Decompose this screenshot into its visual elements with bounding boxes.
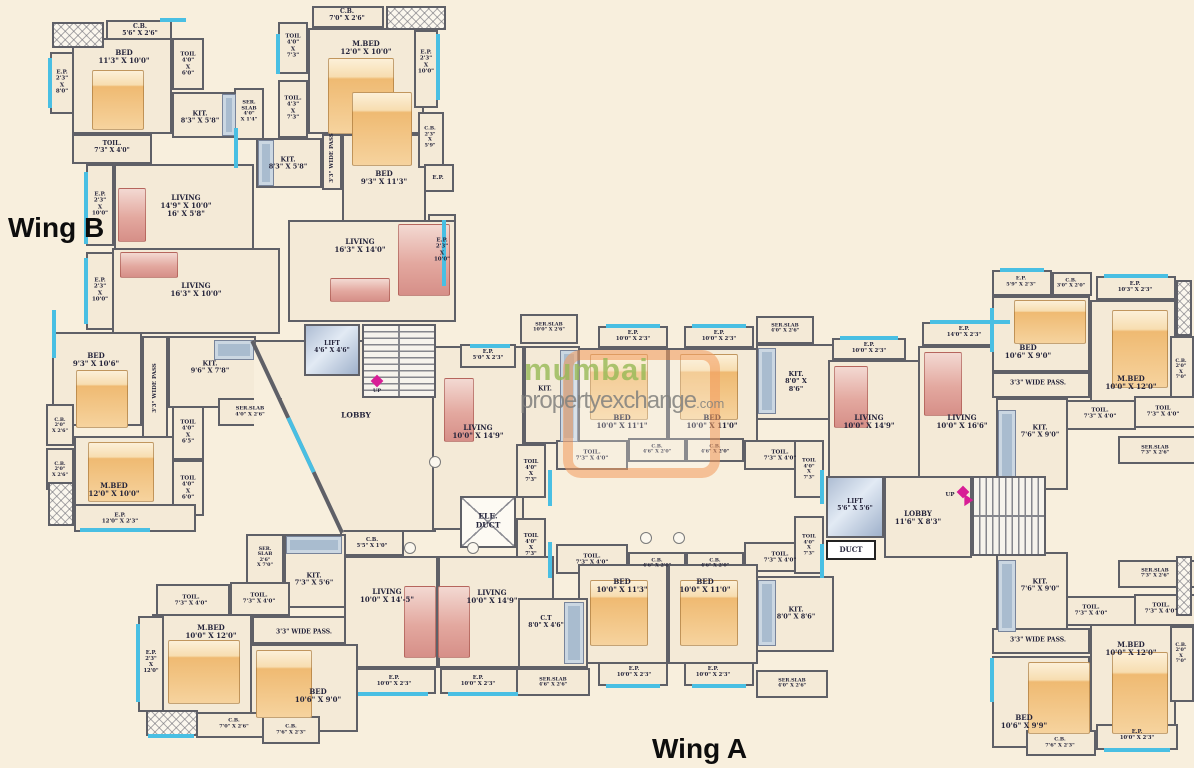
room-label: BED10'6" X 9'0" — [1005, 344, 1051, 360]
room-label-line: 9'3" X 10'6" — [73, 360, 119, 368]
room-label-line: 7'3" X 2'6" — [1141, 451, 1169, 456]
window — [436, 34, 440, 100]
room-label: C.B.2'0"X7'0" — [1175, 359, 1186, 381]
room-label-line: 11'6" X 8'3" — [895, 518, 941, 526]
room-label-line: 8'3" X 5'8" — [181, 118, 219, 125]
room-label: TOIL.7'3" X 4'0" — [1075, 605, 1108, 618]
room-label-line: 7'3" X 4'0" — [764, 456, 797, 462]
room-label-line: 7'3" X 4'0" — [576, 560, 609, 566]
room-label: C.B.3'0" X 2'0" — [1057, 279, 1085, 290]
room-label: TOIL.7'3" X 4'0" — [1084, 408, 1117, 421]
room-label: E.P.5'9" X 2'3" — [1006, 276, 1036, 287]
room-label-line: 7'0" X 2'6" — [329, 16, 364, 23]
room-label-line: 10'0" X 14'9" — [466, 597, 517, 605]
room-label-line: 7'3" — [802, 552, 816, 558]
room-label: BED10'6" X 9'0" — [295, 688, 341, 704]
room-label-line: X 1'4" — [241, 118, 258, 124]
room-label-line: 4'6" X 2'0" — [643, 564, 671, 569]
window — [234, 128, 238, 168]
room-label: 3'3" WIDE PASS. — [1010, 381, 1066, 388]
window — [692, 324, 746, 328]
bed — [168, 640, 240, 704]
room-label-line: 14'0" X 2'3" — [947, 333, 981, 339]
room-label: E.P.10'0" X 2'3" — [852, 343, 886, 355]
floor-plan-page: C.B.5'6" X 2'6"BED11'3" X 10'0"TOIL4'0"X… — [0, 0, 1194, 768]
room-label-line: 7'3" X 5'6" — [295, 580, 333, 587]
room-label-line: 10'0" — [92, 296, 108, 302]
room-label: BED10'0" X 11'3" — [596, 578, 647, 594]
room-label-line: 7'6" X 2'3" — [1045, 743, 1075, 749]
room-label-line: 7'3" X 4'0" — [1147, 412, 1180, 418]
room-label: C.B.7'6" X 2'3" — [276, 724, 306, 735]
room-label: E.P.2'3"X8'0" — [56, 69, 68, 94]
wing-a-label: Wing A — [652, 733, 747, 765]
door-marker — [640, 532, 652, 544]
room-label-line: 2'3" — [56, 76, 68, 82]
room-label-line: 10'0" X 14'-5" — [360, 596, 414, 604]
room-label: TOIL4'0"X7'3" — [524, 534, 538, 558]
room-label-line: 6'5" — [180, 438, 195, 444]
room-label: TOIL.7'3" X 4'0" — [764, 552, 797, 565]
room-label-line: LOBBY — [341, 412, 371, 421]
room-label: LIVING16'3" X 10'0" — [170, 282, 221, 298]
door-marker — [467, 542, 479, 554]
kitchen-counter — [998, 410, 1016, 482]
room-label-line: 6'0" — [180, 494, 195, 500]
room-label: M.BED12'0" X 10'0" — [88, 482, 139, 498]
room-label: TOIL.4'3"X7'3" — [284, 95, 301, 120]
room-label-line: 10'6" X 9'0" — [1005, 352, 1051, 360]
room-label-line: 2'3" — [92, 284, 108, 290]
room-label-line: 7'3" X 2'6" — [1141, 574, 1169, 579]
room-label-line: 10'0" X 11'3" — [596, 586, 647, 594]
room-label-line: 7'3" X 4'0" — [94, 148, 129, 155]
room-label-line: 10'0" X 2'3" — [852, 349, 886, 355]
sofa — [118, 188, 146, 242]
room-label: C.B.2'3"X5'9" — [424, 127, 436, 150]
window — [148, 734, 194, 738]
room-label-line: 4'0" — [285, 40, 300, 46]
room-label: TOIL.7'3" X 4'0" — [1145, 603, 1178, 616]
room-label: KIT.7'6" X 9'0" — [1021, 425, 1059, 440]
window — [606, 684, 660, 688]
room-label-line: X 2'6" — [52, 429, 68, 434]
room-label-line: 4'0" X 2'6" — [771, 329, 799, 334]
window — [990, 658, 994, 702]
window — [1104, 274, 1168, 278]
room-label: E.P.10'0" X 2'3" — [617, 667, 651, 679]
room-label: LOBBY11'6" X 8'3" — [895, 510, 941, 526]
room-label-line: 3'3" WIDE PASS — [329, 133, 335, 183]
hatched-area — [386, 6, 446, 30]
room-label-line: 4'0" X 2'6" — [778, 684, 806, 689]
room-label-line: 10'6" X 9'0" — [295, 696, 341, 704]
hatched-area — [146, 710, 198, 736]
room-label-line: 7'3" — [524, 478, 538, 484]
sofa — [120, 252, 178, 278]
room-label-line: 10'0" X 2'3" — [377, 682, 411, 688]
room-label-line: 7'0" — [1175, 659, 1186, 664]
room-label-line: 5'6" X 5'6" — [837, 506, 872, 513]
room-label-line: 7'3" — [524, 552, 538, 558]
room-label-line: 7'3" X 4'0" — [1084, 414, 1117, 420]
window — [548, 470, 552, 506]
staircase — [362, 324, 436, 398]
room-label: TOIL4'0"X6'0" — [180, 51, 195, 76]
window — [80, 528, 150, 532]
window — [160, 18, 186, 22]
room-label-line: UP — [373, 389, 381, 395]
room-label: SER.SLAB7'3" X 2'6" — [1141, 446, 1169, 457]
room-label-line: 16'3" X 14'0" — [334, 246, 385, 254]
room-label-line: 10'0" X 11'0" — [679, 586, 730, 594]
room-label: TOIL4'0"X7'3" — [524, 460, 538, 484]
room-label: KIT.8'0" X8'6" — [785, 371, 807, 393]
sofa — [330, 278, 390, 302]
kitchen-counter — [998, 560, 1016, 632]
room-label: C.B.5'6" X 2'6" — [122, 24, 157, 38]
room-label-line: 3'0" X 2'0" — [1057, 284, 1085, 289]
room-label: C.B.2'0"X 2'6" — [52, 418, 68, 434]
bed — [1112, 652, 1168, 734]
window — [1104, 748, 1170, 752]
room-label-line: X 7'0" — [257, 563, 273, 568]
room-label-line: 5'9" — [424, 144, 436, 150]
watermark-brand: mumbai — [524, 352, 649, 388]
room-label-line: DUCT — [840, 546, 863, 554]
room-label: C.B.7'0" X 2'6" — [219, 718, 249, 729]
room-label: E.P.2'3"X10'0" — [434, 237, 450, 262]
room-label: TOIL4'0"X7'3" — [802, 535, 816, 558]
window — [48, 58, 52, 108]
room-label: LIVING14'9" X 10'0"16' X 5'8" — [160, 194, 211, 218]
bed — [76, 370, 128, 428]
bed — [256, 650, 312, 718]
room-label: TOIL.7'3" X 4'0" — [243, 593, 276, 606]
room-label-line: 7'3" X 4'0" — [243, 599, 276, 605]
window — [276, 34, 280, 74]
room-label-line: 3'3" WIDE PASS. — [1010, 638, 1066, 645]
room-label: C.B.5'5" X 1'0" — [357, 538, 388, 550]
room-label-line: 16' X 5'8" — [160, 210, 211, 218]
room-label-line: 4'0" X 2'6" — [235, 412, 265, 418]
room-label: E.P.12'0" X 2'3" — [102, 513, 138, 526]
room-label: LOBBY — [341, 412, 371, 421]
room-label: E.P.10'0" X 2'3" — [696, 667, 730, 679]
door-marker — [429, 456, 441, 468]
window — [930, 320, 1010, 324]
room-label: 3'3" WIDE PASS. — [276, 630, 332, 637]
window — [606, 324, 660, 328]
room-label: C.B.4'6" X 2'0" — [701, 559, 729, 570]
room-label-line: 4'6" X 4'6" — [314, 348, 349, 355]
room-label: BED10'6" X 9'9" — [1001, 714, 1047, 730]
room-label: ELE.DUCT — [476, 512, 501, 529]
window — [358, 692, 428, 696]
room-label-line: 10'0" X 16'6" — [936, 422, 987, 430]
room-label-line: 10'0" X 2'3" — [461, 682, 495, 688]
room-label: SER.SLAB4'0" X 2'6" — [771, 324, 799, 335]
room-label: C.B.4'6" X 2'0" — [643, 559, 671, 570]
room-label-line: 7'3" X 4'0" — [1145, 609, 1178, 615]
room-label: KIT.8'0" X 8'6" — [777, 607, 815, 622]
window — [470, 344, 510, 348]
room-label: SER.SLAB2'6"X 7'0" — [257, 547, 273, 569]
room-label: C.B.7'6" X 2'3" — [1045, 737, 1075, 748]
window — [1000, 268, 1044, 272]
room-label: E.P.10'0" X 2'3" — [1120, 730, 1154, 742]
room-label: E.P.14'0" X 2'3" — [947, 327, 981, 339]
room-label-line: 11'3" X 10'0" — [98, 57, 149, 65]
room-label-line: 9'3" X 11'3" — [361, 178, 407, 186]
room-label-line: 10'0" — [434, 256, 450, 262]
room-label: SER.SLAB4'0" X 2'6" — [778, 679, 806, 690]
room-label-line: 7'3" — [802, 476, 816, 482]
window — [840, 336, 898, 340]
room-label: LIVING10'0" X 14'9" — [452, 424, 503, 440]
hatched-area — [48, 482, 74, 526]
room-label: E.P.2'3"X10'0" — [418, 49, 434, 74]
room-label-line: 7'3" X 4'0" — [764, 558, 797, 564]
room-label: 3'3" WIDE PASS — [152, 363, 158, 413]
room-label: KIT.8'3" X 5'8" — [181, 111, 219, 126]
hatched-area — [52, 22, 104, 48]
room-label: M.BED12'0" X 10'0" — [340, 40, 391, 56]
room-label: E.P.10'0" X 2'3" — [702, 331, 736, 343]
window — [548, 542, 552, 578]
kitchen-counter — [214, 340, 254, 360]
hatched-area — [1176, 280, 1192, 336]
room-label: E.P.10'0" X 2'3" — [461, 676, 495, 688]
bed — [1014, 300, 1086, 344]
room-label-line: 7'6" X 2'3" — [276, 730, 306, 736]
room-label-line: 10'0" X 14'9" — [452, 432, 503, 440]
room-label-line: 10'0" X 2'3" — [702, 337, 736, 343]
room-label-line: 5'0" X 2'3" — [473, 356, 504, 362]
room-label-line: 4'0" — [180, 426, 195, 432]
room-label-line: UP — [946, 492, 955, 498]
room-label-line: 7'3" — [285, 52, 300, 58]
room-label-line: 10'0" X 14'9" — [843, 422, 894, 430]
room-label: 3'3" WIDE PASS — [329, 133, 335, 183]
window — [136, 624, 140, 702]
sofa — [924, 352, 962, 416]
room-label: LIVING16'3" X 14'0" — [334, 238, 385, 254]
room-label-line: 10'0" X 12'0" — [1105, 383, 1156, 391]
room-label: TOIL.7'3" X 4'0" — [94, 141, 129, 155]
staircase — [972, 476, 1046, 556]
room-label-line: 4'0" — [180, 482, 195, 488]
room-label: KIT.9'6" X 7'8" — [191, 361, 229, 376]
room-label: E.P.2'3"X12'0" — [143, 651, 158, 675]
room-label-line: 12'0" — [143, 669, 158, 675]
room-label: LIFT5'6" X 5'6" — [837, 499, 872, 513]
room-label-line: 5'9" X 2'3" — [1006, 282, 1036, 288]
watermark-name-text: propertyexchange — [520, 387, 696, 414]
room-label: BED10'0" X 11'0" — [679, 578, 730, 594]
room-label-line: 10'0" X 2'3" — [617, 673, 651, 679]
watermark-name: propertyexchange.com — [520, 387, 724, 415]
kitchen-counter — [286, 536, 342, 554]
room-label: E.P. — [432, 175, 443, 181]
door-marker — [673, 532, 685, 544]
room-label-line: 3'3" WIDE PASS — [152, 363, 158, 413]
room-label: C.T8'0" X 4'6" — [528, 616, 563, 630]
room-label: C.B.7'0" X 2'6" — [329, 9, 364, 23]
room-label: TOIL4'0"X7'3" — [285, 33, 300, 58]
room-label: SER.SLAB4'0" X 2'6" — [235, 406, 265, 417]
kitchen-counter — [564, 602, 584, 664]
room-label: E.P.10'0" X 2'3" — [616, 331, 650, 343]
room-label: 3'3" WIDE PASS. — [1010, 638, 1066, 645]
room-label: KIT.8'3" X 5'8" — [269, 157, 307, 172]
watermark-suffix: .com — [696, 396, 724, 411]
room-label-line: 7'3" — [284, 114, 301, 120]
room-label-line: 9'6" X 7'8" — [191, 368, 229, 375]
room-label-line: E.P. — [432, 175, 443, 181]
room-label: TOIL7'3" X 4'0" — [1147, 406, 1180, 419]
room-label-line: 10'0" X 12'0" — [185, 632, 236, 640]
room-label-line: 12'0" X 10'0" — [340, 48, 391, 56]
room-label-line: 10'6" X 9'9" — [1001, 722, 1047, 730]
room-label-line: 12'0" X 10'0" — [88, 490, 139, 498]
room-label-line: 5'6" X 2'6" — [122, 31, 157, 38]
room-label-line: X 2'6" — [52, 473, 68, 478]
door-marker — [404, 542, 416, 554]
room-label-line: 4'0" — [180, 58, 195, 64]
room-label-line: 5'5" X 1'0" — [357, 544, 388, 550]
room-label-line: 10'3" X 2'3" — [1118, 288, 1152, 294]
room-label: KIT.7'3" X 5'6" — [295, 573, 333, 588]
window — [692, 684, 746, 688]
kitchen-counter — [758, 580, 776, 646]
room-label: TOIL4'0"X6'5" — [180, 419, 195, 444]
room-label: KIT.7'6" X 9'0" — [1021, 579, 1059, 594]
room-label: E.P.10'0" X 2'3" — [377, 676, 411, 688]
room-label: SER.SLAB10'0" X 2'6" — [533, 323, 565, 334]
room-label-line: 2'3" — [418, 56, 434, 62]
room-label: M.BED10'0" X 12'0" — [185, 624, 236, 640]
room-label: LIVING10'0" X 14'9" — [466, 589, 517, 605]
room-label: UP — [373, 389, 381, 395]
room-label-line: 8'3" X 5'8" — [269, 164, 307, 171]
room-label: LIVING10'0" X 14'-5" — [360, 588, 414, 604]
bed — [352, 92, 412, 166]
room-label-line: 8'6" — [785, 386, 807, 393]
room-label: SER.SLAB7'3" X 2'6" — [1141, 569, 1169, 580]
room-label-line: 7'3" X 4'0" — [175, 601, 208, 607]
room-label-line: 16'3" X 10'0" — [170, 290, 221, 298]
room-label-line: 7'0" — [1175, 375, 1186, 380]
room-label-line: 4'3" — [284, 102, 301, 108]
room-label-line: 10'0" X 12'0" — [1105, 649, 1156, 657]
room-label: E.P.5'0" X 2'3" — [473, 350, 504, 362]
room-label-line: 10'0" — [418, 68, 434, 74]
window — [990, 308, 994, 352]
room-label-line: 7'6" X 9'0" — [1021, 586, 1059, 593]
room-label: M.BED10'0" X 12'0" — [1105, 375, 1156, 391]
room-label: SER.SLAB4'0"X 1'4" — [241, 101, 258, 124]
room-label-line: 10'0" X 2'3" — [616, 337, 650, 343]
room-label: TOIL.7'3" X 4'0" — [764, 450, 797, 463]
room-label: LIFT4'6" X 4'6" — [314, 341, 349, 355]
room-label: E.P.10'3" X 2'3" — [1118, 282, 1152, 294]
room-label: M.BED10'0" X 12'0" — [1105, 641, 1156, 657]
window — [52, 310, 56, 358]
room-label-line: 7'0" X 2'6" — [219, 724, 249, 730]
room-label-line: 4'6" X 2'0" — [701, 564, 729, 569]
room-label: C.B.2'0"X7'0" — [1175, 643, 1186, 665]
room-label: BED9'3" X 10'6" — [73, 352, 119, 368]
room-label: TOIL4'0"X7'3" — [802, 459, 816, 482]
room-label: TOIL.7'3" X 4'0" — [175, 595, 208, 608]
sofa — [438, 586, 470, 658]
room-label-line: 12'0" X 2'3" — [102, 519, 138, 525]
room-label: E.P.2'3"X10'0" — [92, 277, 108, 302]
bed — [92, 70, 144, 130]
window — [448, 692, 518, 696]
room-label: SER.SLAB4'6" X 2'6" — [539, 678, 567, 689]
room-label: TOIL4'0"X6'0" — [180, 475, 195, 500]
hatched-area — [1176, 556, 1192, 616]
room-label-line: 2'3" — [92, 198, 108, 204]
room-label-line: 8'0" X 8'6" — [777, 614, 815, 621]
window — [820, 470, 824, 504]
room-label-line: 6'0" — [180, 70, 195, 76]
room-label: LIVING10'0" X 14'9" — [843, 414, 894, 430]
room-label-line: 7'3" X 4'0" — [1075, 611, 1108, 617]
room-label-line: 8'0" X 4'6" — [528, 623, 563, 630]
room-label-line: 3'3" WIDE PASS. — [1010, 381, 1066, 388]
window — [820, 544, 824, 578]
room-label: C.B.2'0"X 2'6" — [52, 462, 68, 478]
room-label: DUCT — [840, 546, 863, 554]
room-label-line: 2'3" — [434, 244, 450, 250]
room-label: TOIL.7'3" X 4'0" — [576, 554, 609, 567]
room-label: BED11'3" X 10'0" — [98, 49, 149, 65]
room-label-line: DUCT — [476, 521, 501, 530]
wing-b-label: Wing B — [8, 212, 104, 244]
window — [84, 258, 88, 324]
kitchen-counter — [758, 348, 776, 414]
room-label-line: 7'6" X 9'0" — [1021, 432, 1059, 439]
room-label-line: 10'0" X 2'6" — [533, 328, 565, 333]
room-label: UP — [946, 492, 955, 498]
room-label-line: 10'0" X 2'3" — [696, 673, 730, 679]
room-label-line: 8'0" — [56, 88, 68, 94]
room-label-line: 4'6" X 2'6" — [539, 683, 567, 688]
room-label: BED9'3" X 11'3" — [361, 170, 407, 186]
room-label-line: 3'3" WIDE PASS. — [276, 630, 332, 637]
room-label-line: 10'0" X 2'3" — [1120, 736, 1154, 742]
room-label: LIVING10'0" X 16'6" — [936, 414, 987, 430]
